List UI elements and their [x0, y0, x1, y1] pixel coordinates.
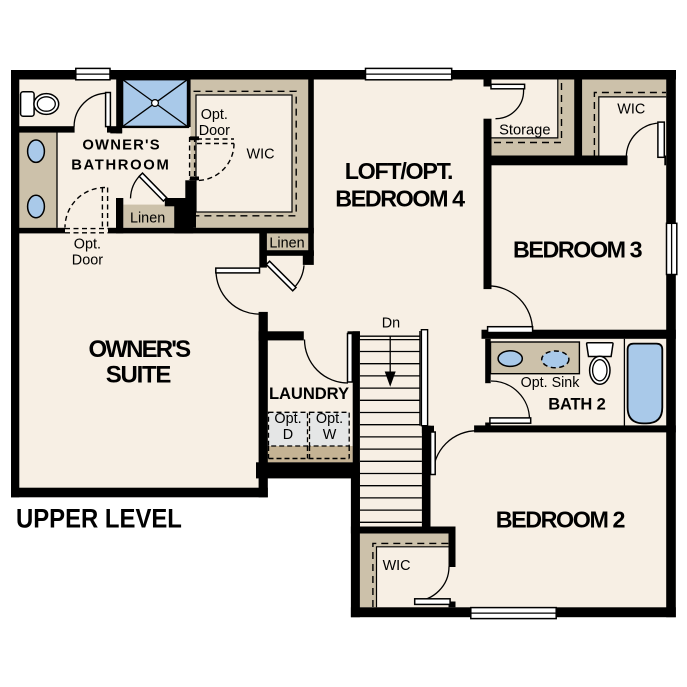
svg-text:Opt.: Opt.: [274, 411, 301, 427]
svg-text:Dn: Dn: [382, 315, 400, 331]
svg-text:Linen: Linen: [130, 210, 165, 226]
svg-text:LAUNDRY: LAUNDRY: [269, 384, 349, 403]
svg-text:OWNER'S: OWNER'S: [89, 336, 192, 363]
svg-text:Opt.: Opt.: [74, 236, 101, 252]
svg-text:BEDROOM 3: BEDROOM 3: [513, 237, 643, 263]
svg-text:Opt. Sink: Opt. Sink: [521, 375, 580, 391]
svg-text:UPPER LEVEL: UPPER LEVEL: [16, 503, 182, 533]
svg-text:W: W: [323, 427, 337, 443]
svg-text:BATH 2: BATH 2: [548, 396, 606, 414]
svg-text:BATHROOM: BATHROOM: [71, 158, 169, 174]
svg-text:SUITE: SUITE: [106, 361, 172, 388]
svg-text:BEDROOM 4: BEDROOM 4: [335, 186, 465, 212]
svg-text:WIC: WIC: [617, 102, 645, 118]
svg-text:Door: Door: [72, 253, 103, 269]
svg-text:WIC: WIC: [383, 558, 411, 574]
svg-text:Opt.: Opt.: [316, 411, 343, 427]
svg-text:D: D: [283, 427, 293, 443]
svg-text:Storage: Storage: [499, 122, 550, 138]
svg-text:LOFT/OPT.: LOFT/OPT.: [345, 158, 454, 184]
svg-text:Opt.: Opt.: [201, 107, 228, 123]
svg-text:Door: Door: [199, 123, 230, 139]
svg-text:BEDROOM 2: BEDROOM 2: [496, 507, 626, 533]
svg-text:Linen: Linen: [269, 235, 304, 251]
svg-text:WIC: WIC: [247, 147, 275, 163]
